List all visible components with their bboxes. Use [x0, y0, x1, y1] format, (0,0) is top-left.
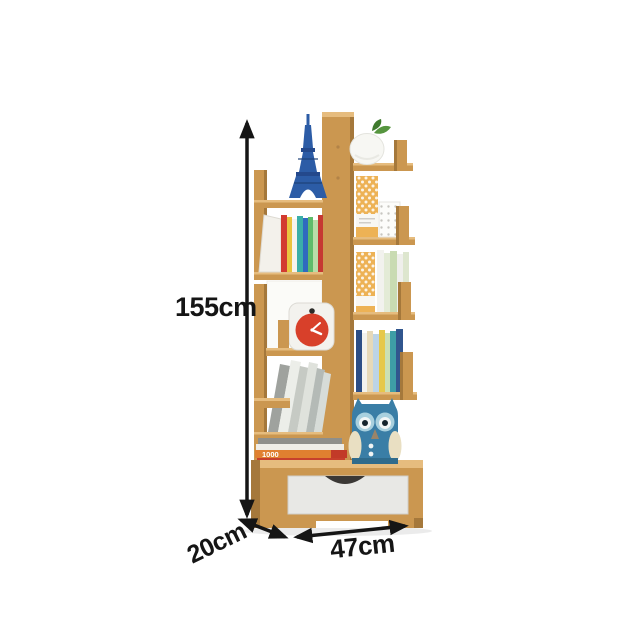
vase-with-plant-icon — [350, 119, 391, 165]
owl-plush-icon — [349, 398, 402, 464]
bookshelf-illustration: 1000 — [0, 0, 640, 640]
product-image: 1000 — [0, 0, 640, 640]
honeycomb-storage-box — [356, 176, 378, 237]
colorful-book-row — [259, 215, 323, 272]
paperback-book-row — [356, 329, 403, 392]
book-spine-text: 1000 — [262, 450, 279, 459]
drawer-base — [251, 460, 423, 528]
cuckoo-clock-icon — [289, 303, 334, 350]
height-dimension-label: 155cm — [175, 294, 245, 321]
trunk-panel — [322, 112, 354, 464]
width-dimension-label: 47cm — [329, 530, 396, 563]
eiffel-tower-icon — [289, 114, 327, 198]
